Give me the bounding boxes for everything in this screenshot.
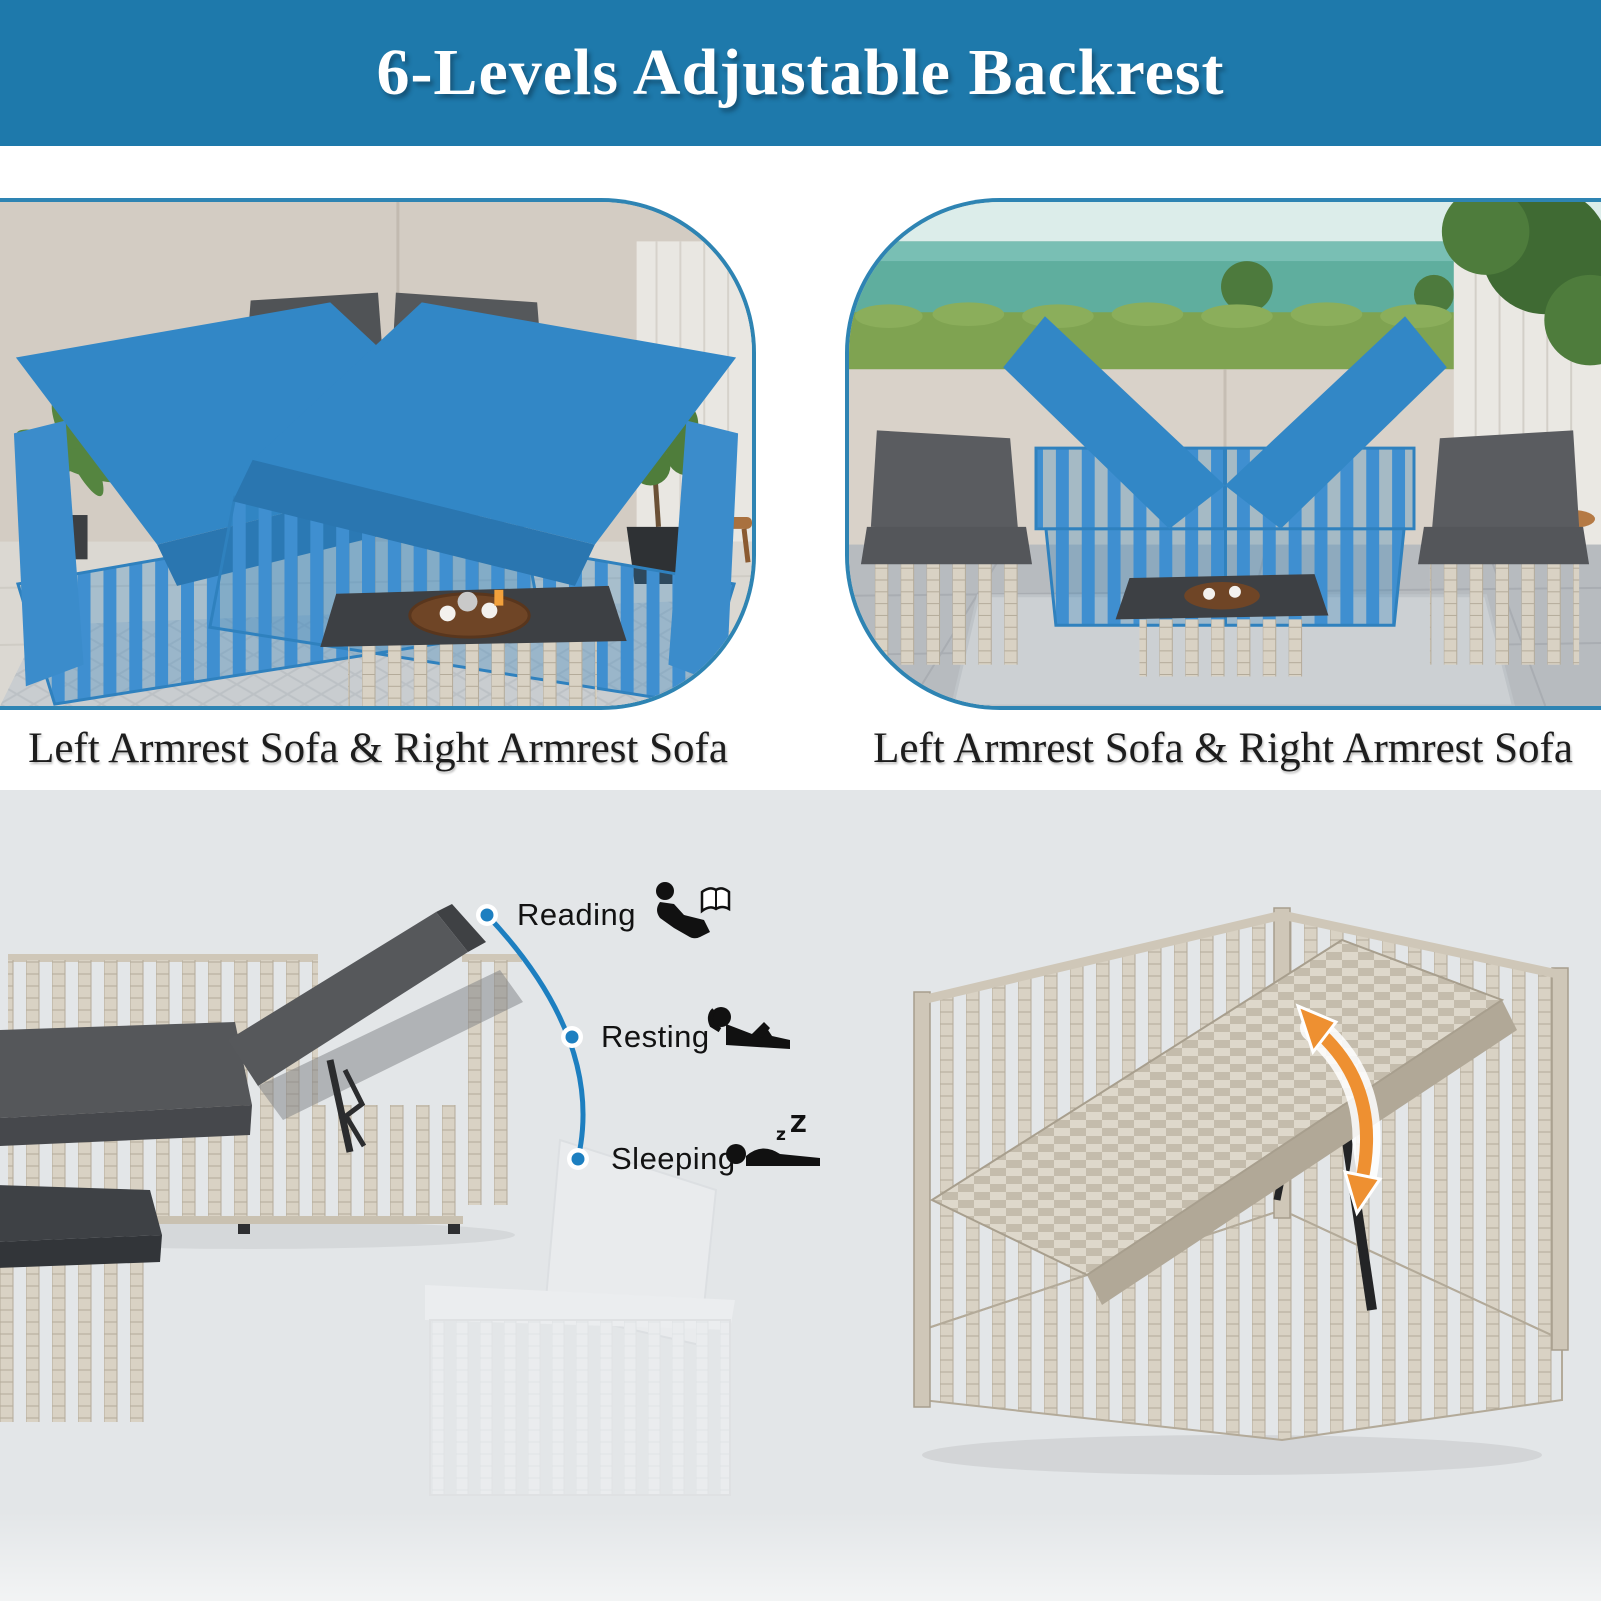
gray-armchair-right (1418, 430, 1589, 664)
coffee-table (0, 1185, 162, 1422)
svg-text:z: z (776, 1125, 786, 1145)
floor-highlight (0, 1511, 1601, 1601)
sectional-raised-backrest (0, 890, 745, 1515)
backrest-demo-illustration (0, 890, 745, 1515)
photo-left (0, 198, 756, 710)
header-banner: 6-Levels Adjustable Backrest (0, 0, 1601, 146)
bottom-panel: Reading Resting Sleeping (0, 790, 1601, 1601)
level-label-sleeping: Sleeping (611, 1141, 736, 1177)
caption-left: Left Armrest Sofa & Right Armrest Sofa (0, 706, 756, 790)
coffee-table (320, 586, 626, 706)
flat-seat-cushion (0, 1022, 252, 1118)
gray-armchair-left (861, 430, 1032, 664)
page-title: 6-Levels Adjustable Backrest (376, 35, 1224, 111)
person-sleeping-icon: z Z (724, 1114, 826, 1176)
mechanism-illustration (862, 880, 1600, 1505)
left-patio-scene (0, 202, 752, 706)
photo-right (845, 198, 1601, 710)
tree-top (1221, 261, 1273, 312)
right-patio-scene (849, 202, 1601, 706)
level-label-reading: Reading (517, 897, 636, 933)
person-reading-icon (648, 880, 736, 948)
product-infographic-page: 6-Levels Adjustable Backrest (0, 0, 1601, 1601)
coffee-table (1116, 574, 1329, 676)
person-resting-icon (706, 1000, 794, 1060)
level-label-resting: Resting (601, 1019, 710, 1055)
wicker-cube-open-lid (862, 880, 1600, 1505)
caption-right: Left Armrest Sofa & Right Armrest Sofa (845, 706, 1601, 790)
svg-text:Z: Z (790, 1114, 807, 1138)
